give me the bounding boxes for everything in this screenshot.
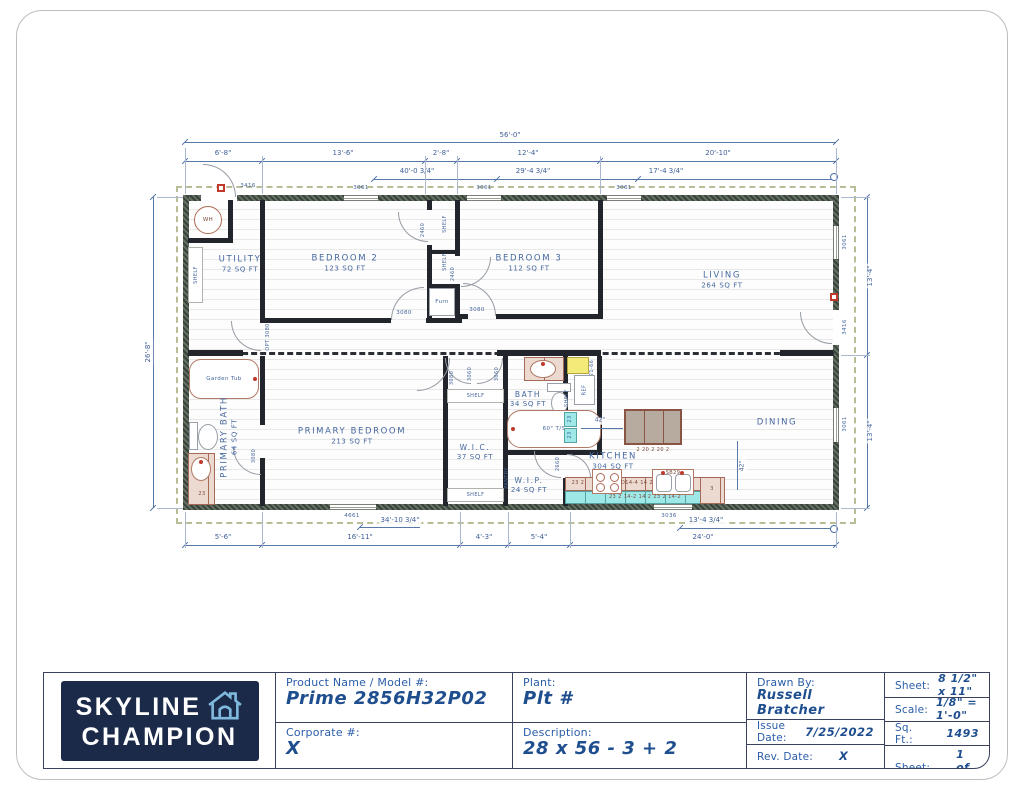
window xyxy=(833,226,839,259)
extension-line xyxy=(157,197,183,198)
dim-tick xyxy=(150,505,156,511)
shelf-label: SHELF xyxy=(442,253,448,271)
cabinet-code: 23 xyxy=(198,491,205,497)
wall xyxy=(260,318,391,323)
extension-line xyxy=(836,148,837,194)
room-name: W.I.P. xyxy=(511,476,547,486)
sheet-size-label: Sheet: xyxy=(895,680,930,692)
extension-line xyxy=(185,512,186,548)
wall xyxy=(183,195,839,201)
product-column: Product Name / Model #: Prime 2856H32P02… xyxy=(276,673,513,768)
door-size-label: 2660 xyxy=(555,457,561,471)
shelf-label: SHELF xyxy=(467,393,485,399)
garden-tub: Garden Tub xyxy=(189,359,259,399)
extension-line xyxy=(841,508,870,509)
extension-line xyxy=(262,512,263,548)
shelf-label: SHELF xyxy=(442,215,448,233)
rev-date-label: Rev. Date: xyxy=(757,751,813,763)
dimension-line xyxy=(185,545,836,546)
issue-date-value: 7/25/2022 xyxy=(805,726,874,739)
dimension-label: 29'-4 3/4" xyxy=(514,168,553,176)
room-label-kitchen: KITCHEN304 SQ FT xyxy=(589,452,637,473)
dimension-label: 56'-0" xyxy=(497,132,522,140)
room-name: BEDROOM 2 xyxy=(312,254,379,265)
dimension-label: 26'-8" xyxy=(145,339,153,364)
faucet-dot xyxy=(541,362,545,366)
drawn-by-column: Drawn By: Russell Bratcher Issue Date: 7… xyxy=(747,673,885,768)
burner-icon xyxy=(596,483,605,492)
floor-plan: WH SHELF Furn Garden Tub 23 60" T/S SHEL… xyxy=(0,0,1024,660)
dimension-label: 34'-10 3/4" xyxy=(379,517,422,525)
door-size-label: 3416 xyxy=(240,183,256,189)
wall xyxy=(188,238,233,243)
room-name: UTILITY xyxy=(219,255,262,266)
faucet-dot xyxy=(511,427,515,431)
electrical-marker xyxy=(217,184,225,192)
shelf-label: SHELF xyxy=(193,266,199,284)
room-area: 112 SQ FT xyxy=(496,265,563,274)
cabinet-code: SB29 xyxy=(666,470,681,476)
extension-line xyxy=(460,512,461,548)
room-label-bath: BATH34 SQ FT xyxy=(510,390,546,410)
window-size-label: 3061 xyxy=(476,185,492,191)
window xyxy=(833,408,839,442)
toilet-tank xyxy=(189,422,198,450)
room-label-primary-bath: PRIMARY BATH64 SQ FT xyxy=(220,396,241,478)
room-name: LIVING xyxy=(701,271,742,282)
window-size-label: 3061 xyxy=(842,416,848,432)
window xyxy=(330,504,376,510)
room-name: KITCHEN xyxy=(589,452,637,463)
window-size-label: 3061 xyxy=(616,185,632,191)
range xyxy=(592,469,622,494)
wall xyxy=(598,200,603,319)
wall xyxy=(188,350,243,356)
product-name-value: Prime 2856H32P02 xyxy=(286,689,502,710)
room-area: 64 SQ FT xyxy=(231,396,240,478)
electrical-marker xyxy=(830,293,838,301)
door-size-label: 3416 xyxy=(842,319,848,335)
window xyxy=(607,195,641,201)
burner-icon xyxy=(610,483,619,492)
cabinet-code: 23 xyxy=(567,415,573,422)
room-name: DINING xyxy=(757,417,797,428)
rear-door-opening xyxy=(833,310,839,345)
shelf-label: SHELF xyxy=(467,492,485,498)
door-size-label: 3080 xyxy=(251,449,257,463)
dim-tick xyxy=(833,139,839,145)
dimension-line xyxy=(374,179,836,180)
house-icon xyxy=(207,690,243,724)
dimension-label: 12'-4" xyxy=(515,150,540,158)
room-area: 72 SQ FT xyxy=(219,266,262,275)
room-area: 37 SQ FT xyxy=(457,453,493,462)
wall xyxy=(427,200,432,210)
dimension-line xyxy=(360,527,420,528)
sink-bowl xyxy=(675,474,691,492)
wic-shelf: SHELF xyxy=(447,389,504,403)
sink-bowl xyxy=(656,474,672,492)
door-size-label: 3080 xyxy=(396,310,412,316)
sheet-info-column: Sheet: 8 1/2" x 11" Scale: 1/8" = 1'-0" … xyxy=(885,673,989,768)
extension-line xyxy=(600,156,601,194)
dimension-label: 4'-3" xyxy=(474,534,495,542)
title-block: SKYLINE CHAMPION Product Name / Model #:… xyxy=(43,672,990,769)
door-size-label: OPT 3080 xyxy=(265,323,271,351)
plant-column: Plant: Plt # Description: 28 x 56 - 3 + … xyxy=(513,673,747,768)
sqft-value: 1493 xyxy=(946,728,979,741)
logo-text-champion: CHAMPION xyxy=(81,724,237,750)
overhead-cabinet xyxy=(567,357,589,374)
burner-icon xyxy=(610,473,619,482)
cabinet-code: 23 2 xyxy=(572,480,585,486)
room-name: BATH xyxy=(510,390,546,400)
room-area: 264 SQ FT xyxy=(701,282,742,291)
room-label-wip: W.I.P.24 SQ FT xyxy=(511,476,547,496)
room-label-utility: UTILITY72 SQ FT xyxy=(219,255,262,276)
corporate-value: X xyxy=(286,739,502,760)
extension-line xyxy=(425,156,426,194)
wall xyxy=(455,200,460,256)
window-size-label: 3061 xyxy=(353,185,369,191)
drawn-by-value: Russell Bratcher xyxy=(757,689,874,719)
door-size-label: 2460 xyxy=(450,267,456,281)
dimension-line xyxy=(581,428,623,429)
room-label-bedroom3: BEDROOM 3112 SQ FT xyxy=(496,254,563,275)
dimension-line xyxy=(153,197,154,508)
pantry-label: PANTRY xyxy=(504,467,510,489)
extension-line xyxy=(157,508,183,509)
fridge-label: REF xyxy=(582,385,588,396)
room-area: 24 SQ FT xyxy=(511,486,547,495)
wall xyxy=(497,350,601,356)
room-label-wic: W.I.C.37 SQ FT xyxy=(457,443,493,463)
wic-shelf: SHELF xyxy=(447,488,504,502)
window xyxy=(654,504,692,510)
wall xyxy=(443,356,448,506)
tub-shower: 60" T/S xyxy=(507,410,601,448)
dimension-label: 40'-0 3/4" xyxy=(398,168,437,176)
scale-label: Scale: xyxy=(895,704,928,716)
extension-line xyxy=(836,512,837,548)
skyline-champion-logo: SKYLINE CHAMPION xyxy=(61,681,259,761)
door-size-label: 3060 xyxy=(494,367,500,381)
window-size-label: 3061 xyxy=(842,234,848,250)
scale-value: 1/8" = 1'-0" xyxy=(936,697,979,722)
dimension-label: 24'-0" xyxy=(690,534,715,542)
entry-door-arc xyxy=(203,164,236,197)
window-size-label: 4661 xyxy=(344,513,360,519)
corporate-label: Corporate #: xyxy=(286,726,502,739)
furnace: Furn xyxy=(429,288,455,316)
dimension-label: 13'-4" xyxy=(867,418,875,443)
door-size-label: 2460 xyxy=(420,223,426,237)
room-label-living: LIVING264 SQ FT xyxy=(701,271,742,292)
sheet-number-value: 1 of 6 xyxy=(956,749,979,769)
room-name: PRIMARY BATH xyxy=(220,396,231,478)
description-value: 28 x 56 - 3 + 2 xyxy=(523,739,736,760)
room-name: PRIMARY BEDROOM xyxy=(298,427,406,438)
dimension-label: 6'-8" xyxy=(213,150,234,158)
room-label-dining: DINING xyxy=(757,417,797,428)
wall xyxy=(183,504,839,510)
extension-line xyxy=(508,512,509,548)
logo-text-skyline: SKYLINE xyxy=(76,694,202,720)
dimension-label: 2'-8" xyxy=(431,150,452,158)
extension-line xyxy=(185,148,186,194)
dimension-label: 13'-4 3/4" xyxy=(687,517,726,525)
sheet-size-value: 8 1/2" x 11" xyxy=(938,673,979,698)
extension-line xyxy=(262,156,263,194)
door-size-label: 3080 xyxy=(469,307,485,313)
extension-line xyxy=(841,197,870,198)
cabinet-code: D14-4 14 2 xyxy=(621,480,653,486)
dimension-label: 5'-4" xyxy=(529,534,550,542)
kitchen-island xyxy=(624,409,682,445)
cabinet-code: 23 xyxy=(567,431,573,438)
sqft-label: Sq. Ft.: xyxy=(895,722,924,746)
burner-icon xyxy=(596,473,605,482)
faucet-dot xyxy=(253,377,257,381)
dimension-line xyxy=(680,528,836,529)
room-name: W.I.C. xyxy=(457,443,493,453)
water-heater: WH xyxy=(194,206,222,234)
door-size-label: 3060 xyxy=(467,367,473,381)
faucet-dot xyxy=(680,471,684,475)
dimension-label: 13'-6" xyxy=(330,150,355,158)
dimension-label: 13'-4" xyxy=(867,263,875,288)
dimension-line xyxy=(185,161,836,162)
faucet-dot xyxy=(661,471,665,475)
door-size-label: 3080 xyxy=(449,371,455,385)
cabinet-code: 3 xyxy=(710,486,714,492)
extension-line xyxy=(457,156,458,194)
window xyxy=(344,195,378,201)
issue-date-label: Issue Date: xyxy=(757,720,797,744)
cabinet-codes: 23 2 14-2 14 2 23 2 14-2 xyxy=(609,494,681,500)
dimension-line xyxy=(185,142,836,143)
garden-tub-label: Garden Tub xyxy=(206,376,241,382)
room-label-primary-bedroom: PRIMARY BEDROOM213 SQ FT xyxy=(298,427,406,448)
utility-shelf: SHELF xyxy=(188,247,203,303)
water-heater-label: WH xyxy=(203,217,213,223)
wall xyxy=(780,350,833,356)
island-codes: 2 20 2 20 2 xyxy=(636,447,669,453)
shelf-label: SHELF xyxy=(564,389,570,407)
dimension-label: 16'-11" xyxy=(345,534,374,542)
dimension-label: 17'-4 3/4" xyxy=(647,168,686,176)
wall xyxy=(496,314,602,319)
room-area: 123 SQ FT xyxy=(312,265,379,274)
extension-line xyxy=(570,512,571,548)
faucet-dot xyxy=(199,460,203,464)
room-label-bedroom2: BEDROOM 2123 SQ FT xyxy=(312,254,379,275)
plant-value: Plt # xyxy=(523,689,736,710)
furnace-label: Furn xyxy=(435,299,449,305)
toilet-bowl xyxy=(198,424,218,450)
wall xyxy=(228,200,233,242)
window-size-label: 3036 xyxy=(661,513,677,519)
rev-date-value: X xyxy=(839,750,848,763)
dimension-label: 42" xyxy=(593,418,607,425)
room-name: BEDROOM 3 xyxy=(496,254,563,265)
wall xyxy=(260,356,265,425)
refrigerator: REF xyxy=(574,375,595,405)
sheet-number-label: Sheet: xyxy=(895,762,930,769)
room-area: 34 SQ FT xyxy=(510,400,546,409)
cabinet-code: 21-66 xyxy=(589,360,595,377)
window xyxy=(467,195,501,201)
dimension-label: 5'-6" xyxy=(213,534,234,542)
room-area: 213 SQ FT xyxy=(298,438,406,447)
dimension-label: 42" xyxy=(740,459,747,473)
tub-label: 60" T/S xyxy=(543,426,566,432)
extension-line xyxy=(841,355,870,356)
room-area: 304 SQ FT xyxy=(589,463,637,472)
logo-cell: SKYLINE CHAMPION xyxy=(44,673,276,768)
dimension-label: 20'-10" xyxy=(703,150,732,158)
